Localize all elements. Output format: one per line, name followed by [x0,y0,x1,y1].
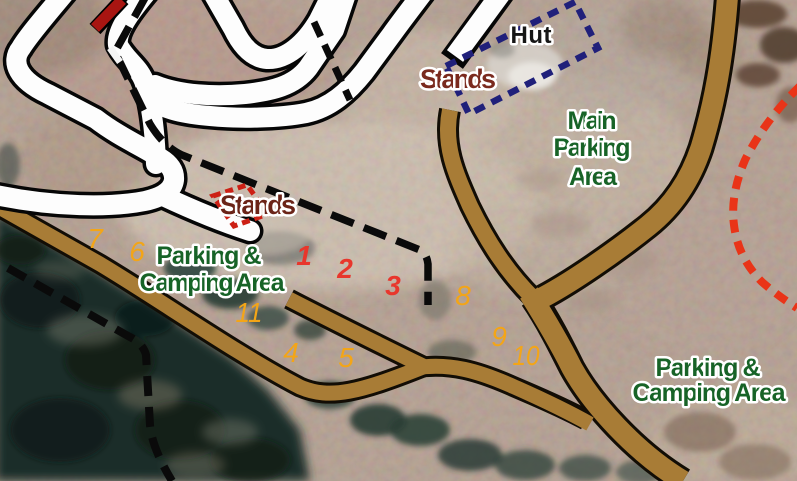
svg-text:Camping Area: Camping Area [633,379,787,407]
svg-text:Stands: Stands [420,64,496,94]
svg-text:5: 5 [338,342,354,373]
svg-text:4: 4 [283,337,299,368]
svg-text:Stands: Stands [220,190,296,220]
svg-text:Main: Main [568,107,617,135]
svg-text:7: 7 [87,223,104,254]
svg-text:11: 11 [236,297,263,328]
svg-text:Camping Area: Camping Area [140,269,286,297]
svg-text:8: 8 [455,280,471,311]
svg-text:6: 6 [129,236,145,267]
svg-text:1: 1 [296,240,312,271]
svg-text:9: 9 [491,321,507,352]
svg-text:10: 10 [513,340,540,371]
svg-text:Hut: Hut [511,22,552,49]
svg-text:3: 3 [385,270,401,301]
svg-text:Parking &: Parking & [157,242,262,270]
svg-text:Parking &: Parking & [656,354,761,382]
svg-text:Area: Area [569,163,618,191]
svg-text:Parking: Parking [554,134,631,162]
svg-text:2: 2 [336,253,353,284]
